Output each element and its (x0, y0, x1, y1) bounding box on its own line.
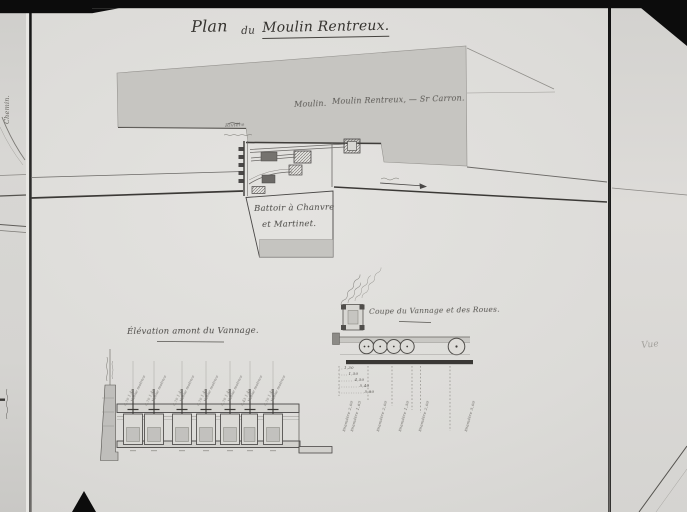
battoir-label-line1: Battoir à Chanvre (254, 204, 334, 214)
battoir-label-line2: et Martinet. (262, 220, 316, 229)
coupe-title: Coupe du Vannage et des Roues. (369, 306, 500, 316)
distance-label-5: 5,80 (365, 390, 375, 394)
distance-label-1: 1,30 (344, 366, 354, 370)
distance-label-4: 5,40 (360, 384, 370, 388)
left-margin-chemin-label: Chemin. (4, 95, 11, 124)
flow-arrowhead (420, 183, 428, 189)
plan-drawing-layer (0, 0, 687, 512)
mill-label-prefix: Moulin. (294, 100, 327, 109)
mill-pond-shape (117, 46, 555, 166)
distance-label-3: 4,50 (355, 378, 365, 382)
page-title-word-du: du (241, 26, 255, 37)
right-strip-marks (639, 446, 687, 512)
page-title-mill-name: Moulin Rentreux. (262, 19, 390, 39)
page-title-word-plan: Plan (191, 18, 228, 35)
mill-pond-polygon (117, 46, 467, 166)
elevation-top-beam (117, 404, 299, 413)
river-label: Rivière (225, 123, 245, 129)
elevation-title: Élévation amont du Vannage. (127, 327, 259, 337)
channel-floor-bar (346, 360, 473, 364)
elevation-side-wall (101, 385, 119, 461)
photographed-plan-sheet: Plan du Moulin Rentreux. Moulin. Moulin … (0, 0, 687, 512)
distance-label-2: 1,50 (349, 372, 359, 376)
right-margin-vue-label: Vue (641, 340, 660, 351)
left-strip-marks (0, 117, 26, 419)
river-banks (31, 167, 687, 202)
flow-arrow (380, 183, 424, 186)
elevation-drawing (101, 342, 333, 461)
diagonal-annotation-scribble (340, 267, 382, 306)
